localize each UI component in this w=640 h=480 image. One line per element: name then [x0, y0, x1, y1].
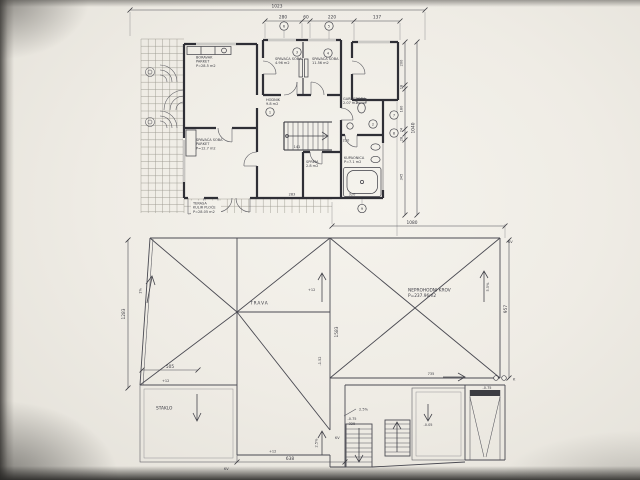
mark-kv-b: KV	[335, 436, 340, 440]
room-terrace-3: P=28.05 m2	[193, 210, 215, 214]
inner-dim-3: 320	[349, 193, 356, 197]
circle-6: 6	[283, 24, 285, 28]
room-labels: BORAVAK PARKET P=28.5 m2 SPAVAĆA SOBA 4.…	[191, 56, 366, 215]
circle-2: 2	[372, 122, 374, 126]
slope-3: 5.5%	[486, 282, 490, 292]
bath-basins	[371, 144, 380, 163]
dim-638: 638	[286, 456, 294, 462]
circle-5: 5	[328, 24, 330, 28]
photo-edge-top	[0, 0, 640, 7]
dim-right-seg3: 180	[400, 106, 404, 113]
roof-stair-up	[385, 420, 410, 456]
inner-dim-2: 283	[289, 193, 296, 197]
slope-2: 2.5%	[315, 438, 319, 448]
dim-1080: 1080	[407, 220, 418, 226]
level-minus075-ramp: -0.75	[482, 386, 491, 390]
dim-right-seg2: 18	[400, 85, 404, 89]
inner-dim-4: 220	[343, 139, 350, 143]
plan-walls	[184, 40, 398, 198]
roof-stair-down	[346, 424, 372, 467]
room-bed2-2: 11.56 m2	[312, 61, 329, 65]
photo-corner-br	[500, 430, 640, 480]
dim-top-seg4: 137	[373, 15, 381, 21]
stair-level: -0.75	[347, 417, 356, 421]
dim-right-seg4: 24	[400, 127, 404, 132]
slope-1: 2.5%	[359, 408, 369, 412]
dim-right-seg6: 345	[400, 174, 404, 181]
room-ward-2: 2.07 m2	[343, 101, 358, 105]
mark-kv-c: KV	[508, 240, 513, 244]
room-bath-2: P=7.1 m2	[344, 160, 361, 164]
roof-name-2: P=237.96m2	[408, 293, 436, 299]
circle-3: 3	[296, 50, 298, 54]
stair-run: 325	[349, 422, 356, 426]
roof-labels: NEPROHODNI KROV P=237.96m2 TRAVA STAKLO	[156, 288, 451, 412]
room-living-3: P=28.5 m2	[196, 64, 216, 68]
kitchen-counter	[187, 47, 231, 55]
mark-k: K	[513, 378, 516, 382]
dim-957: 957	[503, 305, 509, 313]
dim-505: 505	[166, 364, 174, 370]
roof-plan-lines	[140, 238, 500, 467]
slope-4: 1%	[139, 288, 143, 294]
dim-right-seg1: 200	[400, 60, 404, 67]
lower-right-court	[412, 373, 465, 460]
dim-right-seg5: 28	[400, 137, 404, 141]
dim-right-overall: 1040	[411, 122, 417, 133]
circle-8: 8	[393, 131, 395, 135]
circle-7: 7	[393, 113, 395, 117]
room-bed3-3: P=12.7 m2	[196, 146, 216, 150]
stair-interior	[286, 122, 329, 150]
level-minus152: -1.52	[318, 356, 322, 365]
inner-dim-1: 141	[294, 145, 301, 149]
level-minus005: -0.05	[423, 423, 432, 427]
dim-top-seg3: 220	[328, 15, 336, 21]
room-hall-2: 9.8 m2	[266, 102, 278, 106]
dim-top-seg2: 60	[303, 15, 309, 21]
level-plus12-b: +12	[269, 450, 276, 454]
scanned-floorplan-photo: 1023 280 60 220 137 200 18 180 24 28 345…	[0, 0, 640, 480]
circle-9: 9	[361, 207, 363, 211]
reference-circles: 6 5 1 2 3 4 7 8 9	[266, 22, 398, 213]
glass-panel	[140, 385, 237, 462]
circle-1: 1	[269, 110, 271, 114]
dimension-text: 1023 280 60 220 137 200 18 180 24 28 345…	[121, 4, 509, 463]
level-and-slope-text: +12 +12 +12 -1.52 -0.05 -0.75 2.5% 2.5% …	[139, 240, 517, 471]
photo-corner-bl	[0, 400, 120, 480]
roof-grass-label: TRAVA	[249, 301, 269, 307]
dim-1283: 1283	[121, 308, 127, 319]
level-plus12-c: +12	[308, 288, 315, 292]
room-bed1-2: 4.96 m2	[275, 61, 290, 65]
photo-corner-tl	[0, 0, 90, 60]
dim-1583: 1583	[334, 326, 340, 337]
slope-arrows	[146, 271, 488, 455]
roof-name-1: NEPROHODNI KROV	[408, 288, 451, 294]
room-store-2: 2.8 m2	[306, 164, 318, 168]
ramp-run: 735	[428, 372, 435, 376]
roof-glass-label: STAKLO	[156, 406, 173, 412]
dim-top-seg1: 280	[279, 15, 287, 21]
level-plus12-a: +12	[162, 379, 169, 383]
